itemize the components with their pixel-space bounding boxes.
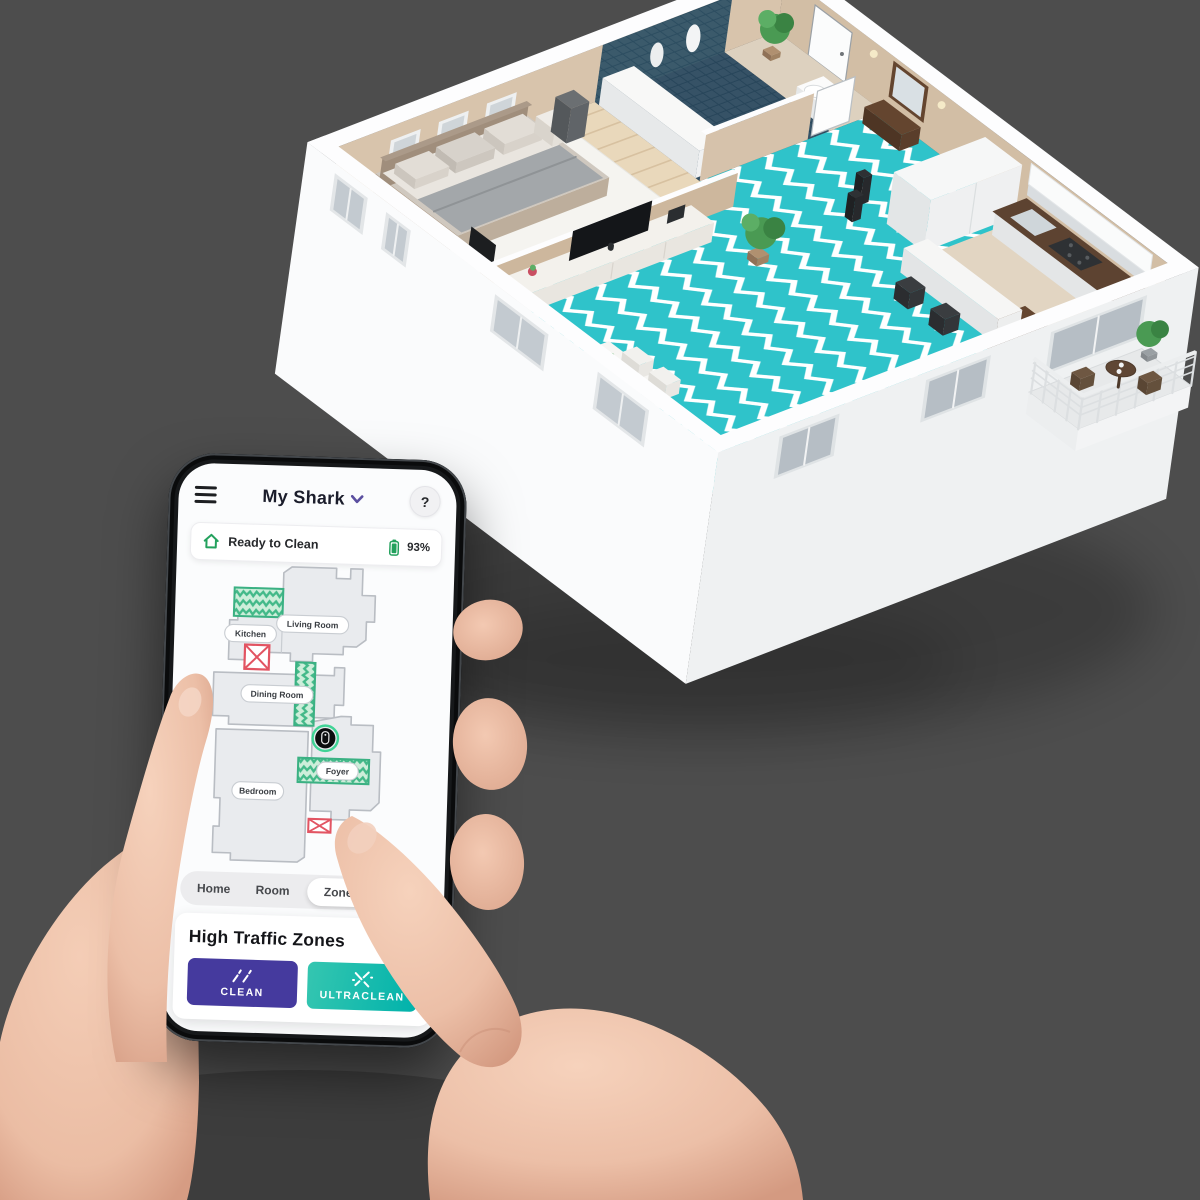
help-button[interactable]: ? <box>409 486 441 518</box>
hamburger-icon[interactable] <box>194 486 217 504</box>
chevron-down-icon <box>351 495 364 504</box>
room-label-kitchen[interactable]: Kitchen <box>224 624 276 643</box>
tab-room[interactable]: Room <box>247 877 298 905</box>
clean-button[interactable]: CLEAN <box>187 958 298 1008</box>
ultraclean-button[interactable]: ULTRACLEAN <box>307 962 418 1012</box>
app-header: My Shark ? <box>178 462 458 524</box>
room-label-foyer[interactable]: Foyer <box>316 762 358 781</box>
zone-kitchen[interactable] <box>234 587 283 617</box>
tab-spot[interactable]: Spot <box>378 881 421 908</box>
battery-icon <box>389 538 400 555</box>
sparkle-clean-icon <box>229 968 255 984</box>
room-label-living-room[interactable]: Living Room <box>276 615 348 634</box>
page-title: My Shark <box>262 486 345 510</box>
svg-text:Kitchen: Kitchen <box>235 628 266 639</box>
device-selector[interactable]: My Shark <box>216 484 410 511</box>
home-icon <box>202 532 221 551</box>
svg-text:Dining Room: Dining Room <box>250 689 304 701</box>
room-label-bedroom[interactable]: Bedroom <box>232 781 284 800</box>
svg-text:Bedroom: Bedroom <box>239 786 277 797</box>
room-label-dining-room[interactable]: Dining Room <box>241 684 313 703</box>
status-text: Ready to Clean <box>228 535 381 554</box>
stage: My Shark ? Ready to Clean <box>0 0 1200 1200</box>
tab-zone[interactable]: Zone <box>306 878 370 908</box>
svg-text:Living Room: Living Room <box>287 619 339 631</box>
shark-app-screen: My Shark ? Ready to Clean <box>162 462 458 1038</box>
nogo-zone-kitchen[interactable] <box>244 645 269 670</box>
sparkle-ultra-icon <box>351 971 373 988</box>
robot-vacuum-icon[interactable] <box>312 725 338 751</box>
smartphone: My Shark ? Ready to Clean <box>152 452 468 1049</box>
nogo-zone-foyer[interactable] <box>308 819 331 833</box>
mode-tabbar[interactable]: HomeRoomZoneSpot <box>180 871 431 913</box>
tab-home[interactable]: Home <box>189 875 239 903</box>
battery-level: 93% <box>407 541 430 554</box>
panel-title: High Traffic Zones <box>188 926 419 954</box>
svg-text:Foyer: Foyer <box>326 766 350 777</box>
high-traffic-panel: High Traffic Zones CLEAN <box>172 912 433 1026</box>
robot-map[interactable]: Living RoomKitchenDining RoomBedroomFoye… <box>167 559 455 877</box>
